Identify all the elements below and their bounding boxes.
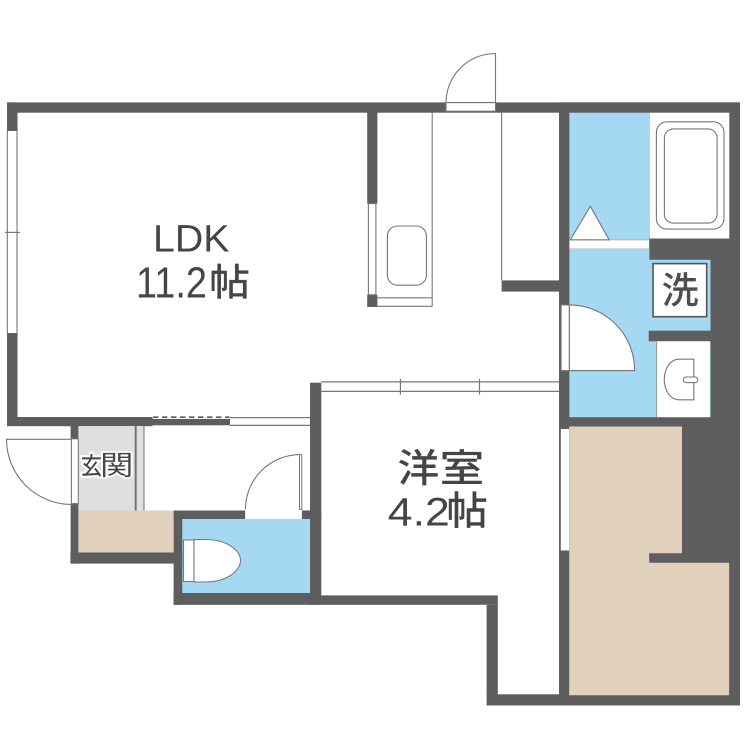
svg-text:11.2: 11.2 [136,259,207,308]
svg-text:4.2: 4.2 [388,491,450,535]
svg-text:LDK: LDK [153,219,230,261]
